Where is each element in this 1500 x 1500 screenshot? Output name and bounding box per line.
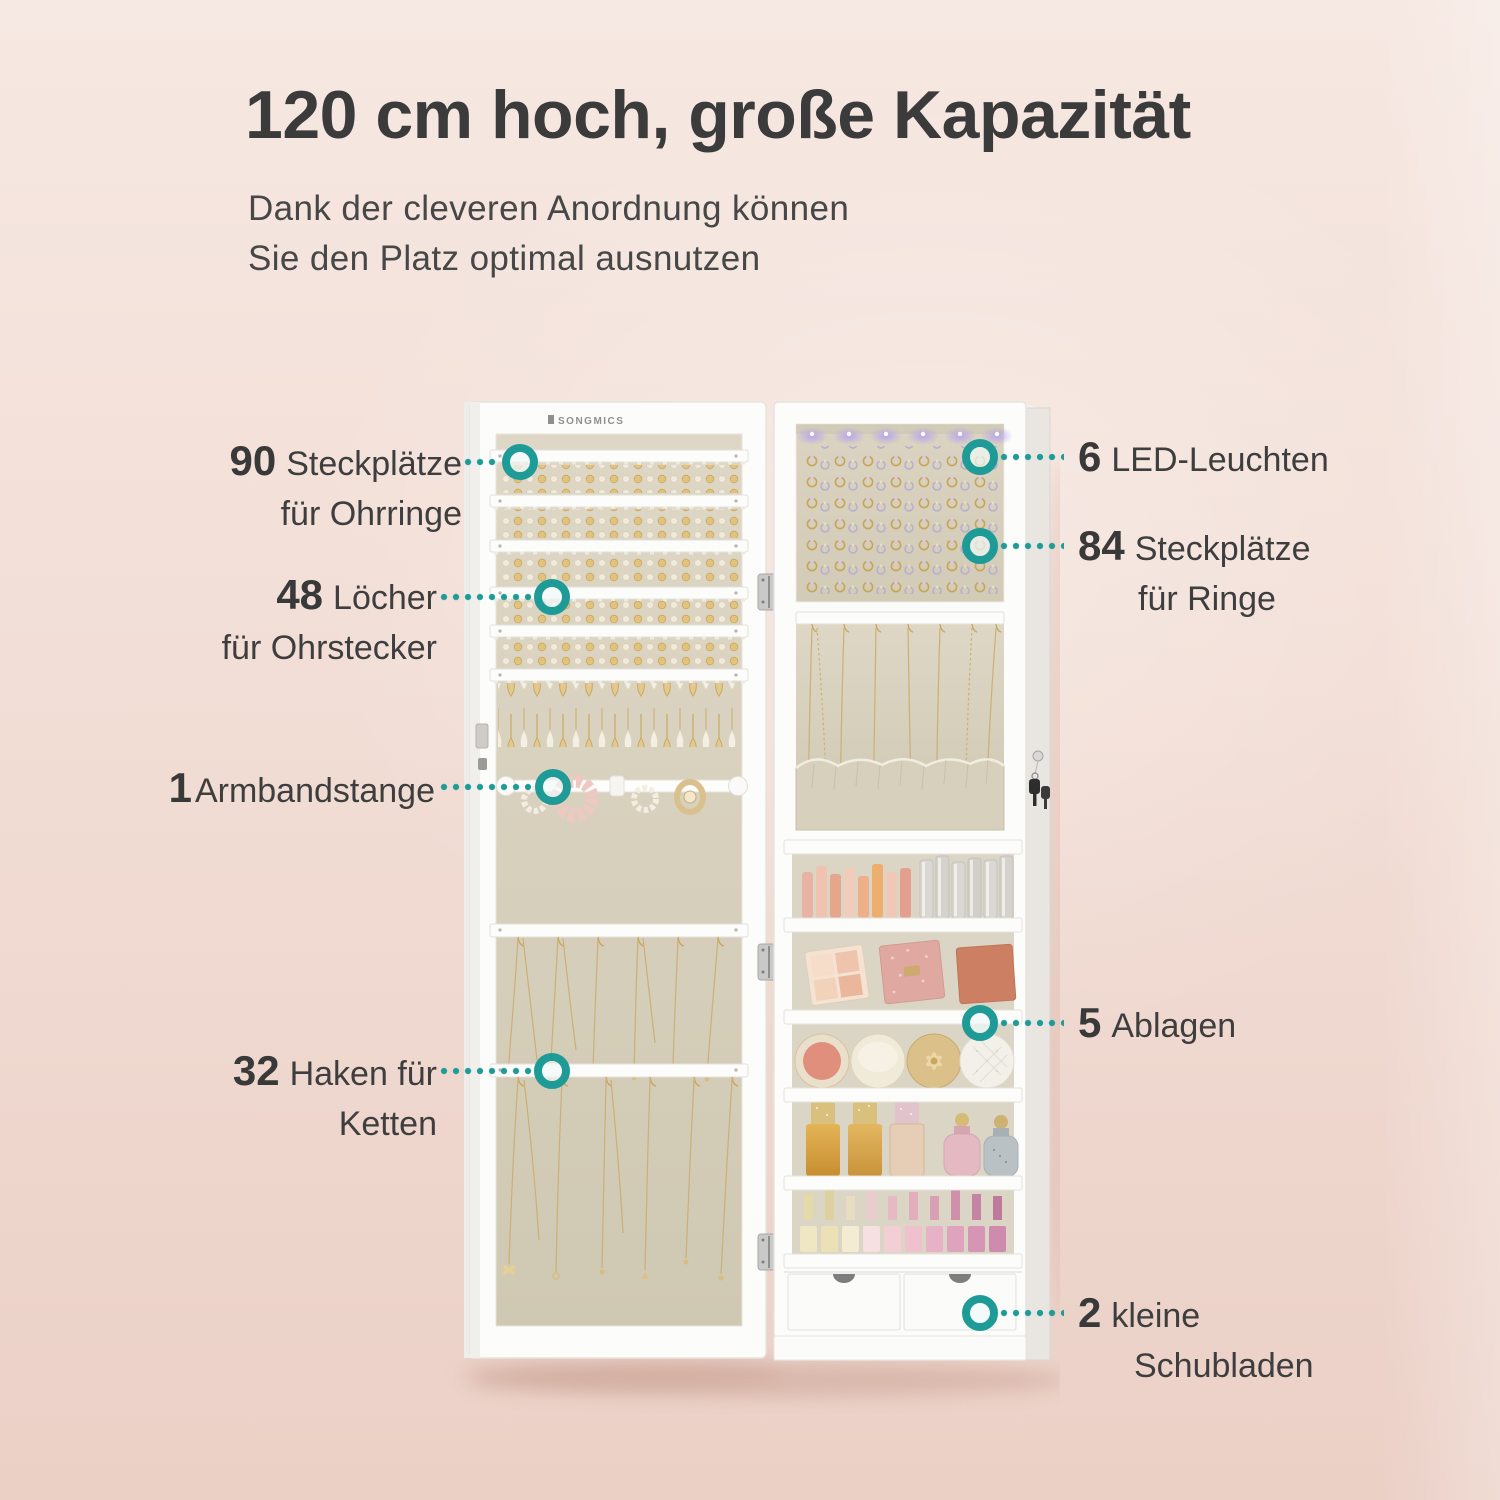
callout-label: Armbandstange [195,772,435,810]
callout-led-lights: 6LED-Leuchten [1078,432,1438,485]
callout-number: 90 [230,437,277,484]
left-door: SONGMICS [464,402,766,1358]
callout-number: 48 [276,571,323,618]
callout-number: 84 [1078,522,1125,569]
callout-label-line2: für Ohrstecker [150,623,437,673]
marker-ring-icon [962,439,998,475]
product-infographic: 120 cm hoch, große Kapazität Dank der cl… [0,0,1500,1500]
marker-ring-icon [535,769,571,805]
callout-stud-holes: 48Löcher für Ohrstecker [150,570,437,673]
leader-dots [1000,1309,1064,1317]
drawer-left [788,1274,900,1330]
callout-number: 32 [233,1047,280,1094]
callout-number: 2 [1078,1289,1101,1336]
leader-dots [464,458,500,466]
callout-number: 5 [1078,999,1101,1046]
marker-ring-icon [534,1053,570,1089]
callout-bracelet-bar: 1Armbandstange [80,763,435,816]
callout-label: Steckplätze [1135,530,1311,568]
makeup-palettes [805,940,1016,1006]
marker-ring-icon [962,1005,998,1041]
callout-number: 1 [169,764,192,811]
callout-shelves: 5Ablagen [1078,998,1438,1051]
marker-ring-icon [534,579,570,615]
callout-earring-slots: 90Steckplätze für Ohrringe [150,436,462,539]
callout-label-line2: Ketten [150,1099,437,1149]
wall-highlight [1380,0,1500,1500]
callout-label: Ablagen [1111,1007,1236,1045]
leader-dots [1000,542,1064,550]
callout-label-line2: für Ohrringe [150,489,462,539]
callout-label: Steckplätze [286,445,462,483]
subtitle-line-2: Sie den Platz optimal ausnutzen [248,234,1068,284]
marker-ring-icon [502,444,538,480]
svg-text:SONGMICS: SONGMICS [558,416,624,427]
callout-label: Haken für [290,1055,437,1093]
callout-label: kleine [1111,1297,1200,1335]
callout-label-line2: Schubladen [1078,1341,1438,1391]
marker-ring-icon [962,1295,998,1331]
callout-ring-slots: 84Steckplätze für Ringe [1078,521,1438,624]
leader-dots [1000,1019,1064,1027]
brand-logo: SONGMICS [548,415,624,427]
dangling-earrings [498,683,740,747]
callout-drawers: 2kleine Schubladen [1078,1288,1438,1391]
callout-label: Löcher [333,579,437,617]
drawer-right [904,1274,1016,1330]
page-subtitle: Dank der cleveren Anordnung können Sie d… [248,184,1068,284]
leader-dots [440,783,534,791]
cabinet-side-panel [1026,408,1050,1360]
callout-number: 6 [1078,433,1101,480]
marker-ring-icon [962,528,998,564]
leader-dots [440,593,532,601]
leader-dots [1000,453,1064,461]
storage-pouch [796,759,1004,830]
page-title: 120 cm hoch, große Kapazität [245,76,1345,154]
callout-necklace-hooks: 32Haken für Ketten [150,1046,437,1149]
subtitle-line-1: Dank der cleveren Anordnung können [248,184,1068,234]
callout-label-line2: für Ringe [1078,574,1438,624]
callout-label: LED-Leuchten [1111,441,1328,479]
leader-dots [440,1067,532,1075]
